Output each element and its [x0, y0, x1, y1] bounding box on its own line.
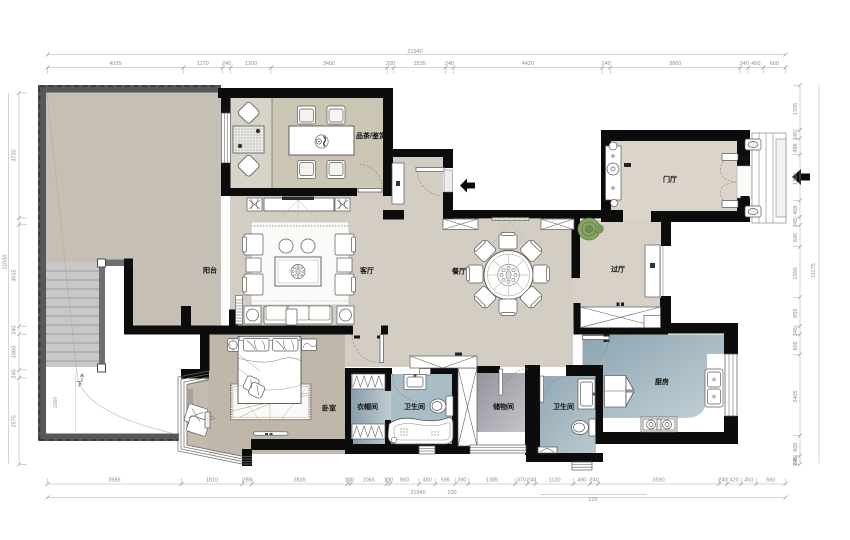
svg-text:535: 535	[793, 456, 799, 465]
svg-text:100: 100	[384, 478, 393, 484]
svg-text:储物间: 储物间	[492, 402, 514, 411]
svg-text:660: 660	[766, 478, 775, 484]
svg-text:605: 605	[793, 341, 799, 350]
svg-text:1060: 1060	[12, 346, 18, 358]
svg-text:240: 240	[602, 61, 611, 67]
svg-text:2000: 2000	[53, 397, 59, 408]
svg-text:490: 490	[577, 478, 586, 484]
svg-text:卫生间: 卫生间	[404, 402, 425, 411]
svg-text:2835: 2835	[294, 478, 306, 484]
svg-text:595: 595	[441, 478, 450, 484]
svg-text:660: 660	[770, 61, 779, 67]
svg-text:855: 855	[793, 309, 799, 318]
svg-text:1535: 1535	[413, 61, 425, 67]
svg-text:605: 605	[793, 443, 799, 452]
svg-text:100: 100	[345, 478, 354, 484]
svg-text:860: 860	[400, 478, 409, 484]
svg-text:120: 120	[588, 497, 597, 503]
svg-text:厨房: 厨房	[655, 377, 669, 386]
svg-text:488: 488	[793, 143, 799, 152]
svg-text:450: 450	[751, 61, 760, 67]
svg-text:卧室: 卧室	[322, 404, 336, 413]
svg-text:3720: 3720	[12, 149, 18, 161]
svg-text:11175: 11175	[811, 263, 817, 277]
svg-text:过厅: 过厅	[611, 265, 625, 274]
svg-text:240: 240	[740, 61, 749, 67]
svg-text:450: 450	[744, 478, 753, 484]
svg-text:200: 200	[386, 61, 395, 67]
svg-text:490: 490	[423, 478, 432, 484]
svg-text:640: 640	[793, 233, 799, 242]
svg-text:370: 370	[517, 478, 526, 484]
svg-text:11050: 11050	[3, 255, 9, 270]
svg-text:1170: 1170	[197, 61, 209, 67]
svg-text:3860: 3860	[669, 61, 681, 67]
svg-text:420: 420	[730, 478, 739, 484]
svg-text:卫生间: 卫生间	[553, 402, 574, 411]
svg-text:4035: 4035	[109, 61, 121, 67]
svg-text:阳台: 阳台	[203, 266, 217, 275]
svg-text:1364: 1364	[793, 173, 799, 185]
svg-text:1810: 1810	[206, 478, 218, 484]
svg-text:3015: 3015	[12, 269, 18, 281]
svg-text:488: 488	[793, 206, 799, 215]
svg-text:240: 240	[590, 478, 599, 484]
svg-text:21940: 21940	[410, 490, 425, 496]
svg-text:245: 245	[793, 327, 799, 336]
svg-text:245: 245	[793, 131, 799, 140]
svg-text:390: 390	[457, 478, 466, 484]
svg-text:客厅: 客厅	[359, 266, 374, 275]
svg-text:240: 240	[718, 478, 727, 484]
svg-text:21940: 21940	[407, 49, 422, 55]
svg-text:1130: 1130	[549, 478, 561, 484]
svg-text:衣帽间: 衣帽间	[357, 402, 378, 411]
svg-text:1500: 1500	[793, 267, 799, 279]
svg-text:1200: 1200	[245, 61, 257, 67]
svg-text:2575: 2575	[12, 415, 18, 427]
svg-text:1065: 1065	[363, 478, 375, 484]
svg-text:100: 100	[447, 490, 456, 496]
svg-text:1335: 1335	[793, 103, 799, 115]
svg-text:240: 240	[222, 61, 231, 67]
svg-text:4420: 4420	[522, 61, 534, 67]
svg-text:245: 245	[793, 218, 799, 227]
svg-text:品茶/鉴赏: 品茶/鉴赏	[356, 131, 386, 140]
svg-text:240: 240	[12, 369, 18, 378]
svg-text:3450: 3450	[323, 61, 335, 67]
svg-text:1385: 1385	[486, 478, 498, 484]
svg-text:240: 240	[527, 478, 536, 484]
svg-text:餐厅: 餐厅	[451, 267, 466, 276]
svg-text:门厅: 门厅	[663, 175, 677, 184]
svg-text:240: 240	[12, 326, 18, 335]
svg-text:285: 285	[243, 478, 252, 484]
svg-text:2405: 2405	[793, 390, 799, 402]
svg-text:3590: 3590	[652, 478, 664, 484]
svg-text:3985: 3985	[108, 478, 120, 484]
svg-text:240: 240	[445, 61, 454, 67]
